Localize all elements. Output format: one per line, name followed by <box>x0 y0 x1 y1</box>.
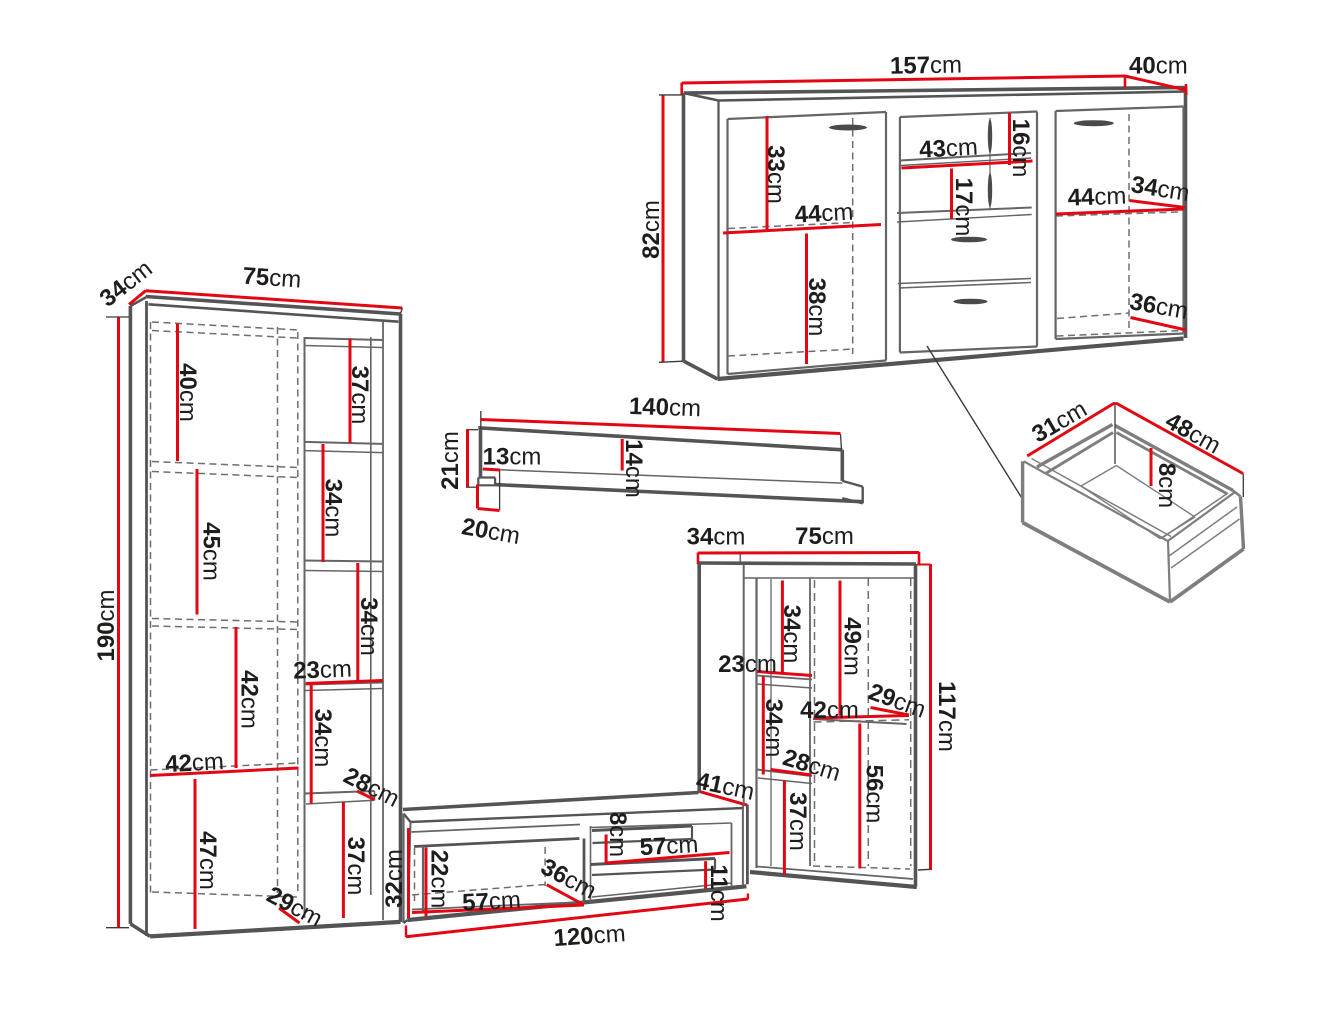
svg-text:47cm: 47cm <box>194 831 221 890</box>
svg-text:32cm: 32cm <box>381 849 408 908</box>
svg-text:42cm: 42cm <box>800 697 859 724</box>
svg-text:45cm: 45cm <box>197 522 224 581</box>
svg-text:8cm: 8cm <box>604 812 631 857</box>
svg-text:8cm: 8cm <box>1153 463 1180 508</box>
svg-text:34cm: 34cm <box>778 605 805 664</box>
svg-text:34cm: 34cm <box>760 699 787 758</box>
svg-text:23cm: 23cm <box>293 656 353 685</box>
svg-text:117cm: 117cm <box>933 681 960 752</box>
svg-text:157cm: 157cm <box>890 52 963 80</box>
svg-text:37cm: 37cm <box>784 792 811 851</box>
svg-text:13cm: 13cm <box>483 444 542 471</box>
svg-text:38cm: 38cm <box>803 278 830 337</box>
svg-text:40cm: 40cm <box>1129 53 1188 80</box>
svg-text:34cm: 34cm <box>355 597 382 656</box>
svg-text:42cm: 42cm <box>165 748 225 778</box>
svg-text:42cm: 42cm <box>235 670 262 729</box>
svg-text:190cm: 190cm <box>93 589 120 661</box>
svg-text:37cm: 37cm <box>346 366 373 425</box>
svg-text:33cm: 33cm <box>762 145 789 204</box>
svg-text:44cm: 44cm <box>794 199 854 229</box>
svg-text:34cm: 34cm <box>319 479 346 538</box>
svg-text:16cm: 16cm <box>1007 119 1034 178</box>
svg-text:43cm: 43cm <box>919 134 979 164</box>
svg-text:140cm: 140cm <box>628 393 701 422</box>
svg-text:57cm: 57cm <box>462 887 522 917</box>
svg-text:40cm: 40cm <box>174 363 201 422</box>
svg-text:75cm: 75cm <box>795 523 854 550</box>
svg-text:75cm: 75cm <box>242 263 302 294</box>
svg-text:57cm: 57cm <box>639 831 699 861</box>
svg-text:37cm: 37cm <box>342 837 369 896</box>
svg-text:14cm: 14cm <box>620 439 647 498</box>
svg-text:17cm: 17cm <box>950 178 977 237</box>
svg-text:21cm: 21cm <box>437 431 464 490</box>
svg-text:44cm: 44cm <box>1067 183 1127 212</box>
svg-text:82cm: 82cm <box>638 200 665 259</box>
svg-text:22cm: 22cm <box>425 850 452 909</box>
svg-text:11cm: 11cm <box>705 864 732 921</box>
svg-text:120cm: 120cm <box>553 920 627 952</box>
svg-text:34cm: 34cm <box>309 709 336 768</box>
svg-text:34cm: 34cm <box>687 524 746 551</box>
svg-text:23cm: 23cm <box>718 651 777 678</box>
svg-text:49cm: 49cm <box>838 617 865 676</box>
svg-text:56cm: 56cm <box>860 765 887 824</box>
